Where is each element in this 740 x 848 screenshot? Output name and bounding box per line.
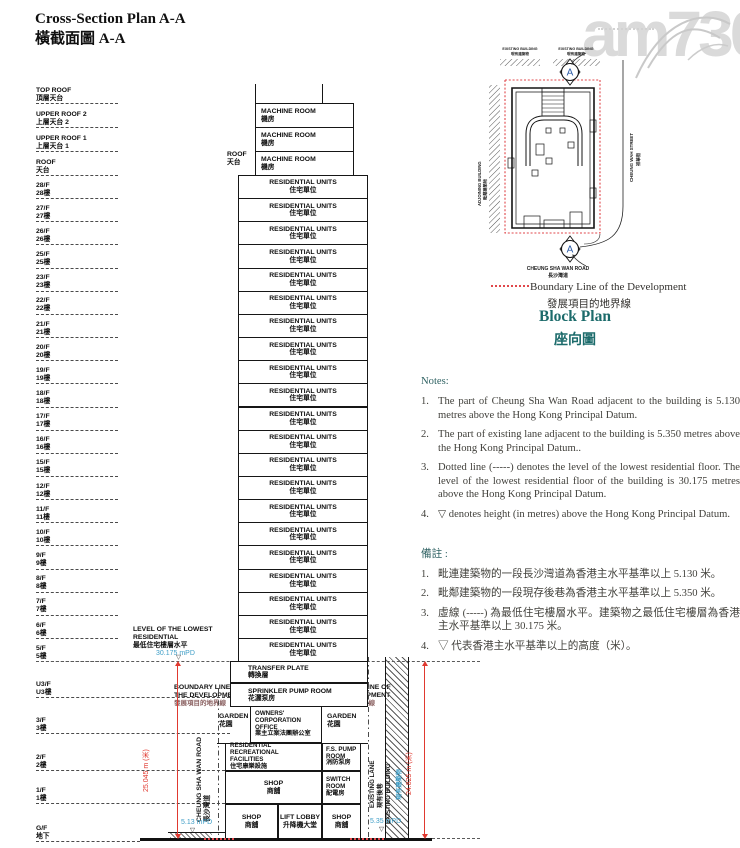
floor-label-toproof: TOP ROOF頂層天台: [36, 87, 71, 103]
switch-room-box: SWITCHROOM配電房: [322, 771, 361, 804]
floor-label-10f: 10/F10樓: [36, 529, 50, 545]
floor-level-dash: [36, 383, 118, 384]
garden-label-left: GARDEN花園: [219, 713, 248, 729]
floor-label-18f: 18/F18樓: [36, 390, 50, 406]
dimension-arrow: [175, 661, 181, 666]
notes-heading-zh: 備註 :: [421, 548, 740, 562]
floor-label-8f: 8/F8樓: [36, 575, 47, 591]
cheung-wah-street-label-en: CHEUNG WAH STREET: [629, 133, 634, 182]
dimension-arrow: [175, 834, 181, 839]
residential-units-box: RESIDENTIAL UNITS住宅單位: [238, 268, 368, 292]
floor-label-16f: 16/F16樓: [36, 436, 50, 452]
ground-dashed-right: [432, 838, 480, 839]
residential-units-box: RESIDENTIAL UNITS住宅單位: [238, 522, 368, 546]
notes-section: Notes: 1.The part of Cheung Sha Wan Road…: [421, 375, 740, 659]
adjoining-building-label-zh: 毗鄰建築物: [482, 178, 489, 200]
sprinkler-pump-room-box: SPRINKLER PUMP ROOM花灑泵房: [230, 683, 368, 707]
floor-level-dash: [36, 407, 118, 408]
boundary-line-rect: [505, 80, 600, 233]
machine-room-box: MACHINE ROOM機房: [255, 151, 354, 176]
floor-level-dash: [36, 291, 118, 292]
floor-level-dash: [36, 221, 118, 222]
floor-level-dash: [36, 592, 118, 593]
floor-level-dash: [36, 841, 140, 842]
floor-label-23f: 23/F23樓: [36, 274, 50, 290]
floor-level-dash: [36, 638, 118, 639]
floor-level-dash: [36, 453, 118, 454]
owners-corporation-office-box: OWNERS'CORPORATIONOFFICE業主立案法團辦公室: [250, 706, 322, 743]
boundary-legend-line: [491, 285, 529, 287]
floor-label-upperroof1: UPPER ROOF 1上層天台 1: [36, 135, 87, 151]
level-marker-535: ▽: [379, 827, 384, 834]
floor-label-20f: 20/F20樓: [36, 344, 50, 360]
parapet-line: [322, 84, 323, 103]
floor-level-dash: [36, 337, 118, 338]
road-curve-outer: [580, 206, 623, 247]
boundary-legend-text-en: Boundary Line of the Development: [530, 281, 686, 293]
floor-level-dash: [36, 175, 118, 176]
block-plan-title-en: Block Plan: [500, 308, 650, 326]
garden-label-right: GARDEN花園: [327, 713, 356, 729]
floor-label-1f: 1/F1樓: [36, 787, 47, 803]
residential-units-box: RESIDENTIAL UNITS住宅單位: [238, 314, 368, 338]
shop-box-1f: SHOP商舖: [225, 771, 322, 804]
residential-units-box: RESIDENTIAL UNITS住宅單位: [238, 569, 368, 593]
svg-text:A: A: [567, 68, 574, 79]
block-plan-title-zh: 座向圖: [500, 329, 650, 349]
floor-label-15f: 15/F15樓: [36, 459, 50, 475]
residential-units-box: RESIDENTIAL UNITS住宅單位: [238, 430, 368, 454]
floor-level-dash: [36, 103, 118, 104]
floor-label-gf: G/F地下: [36, 825, 50, 841]
note-item: 4.▽ 代表香港主水平基準以上的高度（米）。: [421, 640, 740, 654]
existing-building-top-right-label-en: EXISTING BUILDING: [558, 47, 593, 51]
residential-units-box: RESIDENTIAL UNITS住宅單位: [238, 383, 368, 407]
residential-units-box: RESIDENTIAL UNITS住宅單位: [238, 337, 368, 361]
notes-list-en: 1.The part of Cheung Sha Wan Road adjace…: [421, 395, 740, 522]
existing-building-label-en: EXISTING BUILDING: [385, 763, 393, 824]
residential-units-box: RESIDENTIAL UNITS住宅單位: [238, 592, 368, 616]
note-item: 3.Dotted line (-----) denotes the level …: [421, 461, 740, 502]
note-item: 4.▽ denotes height (in metres) above the…: [421, 508, 740, 522]
floor-label-upperroof2: UPPER ROOF 2上層天台 2: [36, 111, 87, 127]
residential-units-box: RESIDENTIAL UNITS住宅單位: [238, 221, 368, 245]
floor-level-dash: [36, 360, 118, 361]
machine-room-box: MACHINE ROOM機房: [255, 103, 354, 128]
floor-level-dash: [36, 244, 118, 245]
note-item: 1.The part of Cheung Sha Wan Road adjace…: [421, 395, 740, 423]
residential-units-box: RESIDENTIAL UNITS住宅單位: [238, 476, 368, 500]
floor-level-dash: [36, 198, 118, 199]
residential-units-box: RESIDENTIAL UNITS住宅單位: [238, 360, 368, 384]
note-item: 2.毗鄰建築物的一段現存後巷為香港主水平基準以上 5.350 米。: [421, 587, 740, 601]
shop-box-gf-left: SHOP商舖: [225, 804, 278, 839]
existing-building-top-left-label-en: EXISTING BUILDING: [502, 47, 537, 51]
floor-label-9f: 9/F9樓: [36, 552, 47, 568]
floor-label-6f: 6/F6樓: [36, 622, 47, 638]
floor-level-dash: [36, 569, 118, 570]
floor-label-u3f: U3/FU3樓: [36, 681, 52, 697]
existing-lane-label: EXISTING LANE現有後巷: [369, 761, 385, 808]
residential-units-box: RESIDENTIAL UNITS住宅單位: [238, 244, 368, 268]
dimension-line-right: [424, 663, 425, 837]
floor-level-dash: [36, 476, 118, 477]
residential-units-box: RESIDENTIAL UNITS住宅單位: [238, 545, 368, 569]
cheung-sha-wan-road-label-zh: 長沙灣道: [548, 272, 568, 279]
transfer-plate-box: TRANSFER PLATE轉換層: [230, 661, 368, 683]
floor-label-26f: 26/F26樓: [36, 228, 50, 244]
existing-building-top-left-label-zh: 現有建築物: [511, 51, 529, 56]
residential-units-box: RESIDENTIAL UNITS住宅單位: [238, 291, 368, 315]
note-item: 2.The part of existing lane adjacent to …: [421, 428, 740, 456]
floor-level-dash: [36, 151, 118, 152]
dimension-arrow: [422, 661, 428, 666]
lift-lobby-box: LIFT LOBBY升降機大堂: [278, 804, 322, 839]
floor-level-dash: [36, 127, 118, 128]
page-title-zh: 橫截面圖 A-A: [35, 30, 186, 50]
boundary-line-left: [218, 688, 219, 841]
residential-units-box: RESIDENTIAL UNITS住宅單位: [238, 175, 368, 199]
ground-line: [140, 838, 432, 841]
floor-label-17f: 17/F17樓: [36, 413, 50, 429]
floor-label-28f: 28/F28樓: [36, 182, 50, 198]
residential-units-box: RESIDENTIAL UNITS住宅單位: [238, 407, 368, 431]
page-title-en: Cross-Section Plan A-A: [35, 10, 186, 30]
floor-label-19f: 19/F19樓: [36, 367, 50, 383]
floor-level-dash: [36, 733, 230, 734]
floor-label-7f: 7/F7樓: [36, 598, 47, 614]
notes-heading-en: Notes:: [421, 375, 740, 389]
dimension-left-value: 25.045 m (米): [143, 749, 152, 792]
notes-list-zh: 1.毗連建築物的一段長沙灣道為香港主水平基準以上 5.130 米。2.毗鄰建築物…: [421, 568, 740, 653]
note-item: 1.毗連建築物的一段長沙灣道為香港主水平基準以上 5.130 米。: [421, 568, 740, 582]
residential-recreational-facilities-box: RESIDENTIAL RECREATIONALFACILITIES住宅康樂設施: [225, 743, 322, 771]
adjoining-building-hatch: [489, 85, 500, 233]
fs-pump-room-box: F.S. PUMPROOM消防泵房: [322, 743, 361, 771]
road-curve-inner: [584, 234, 600, 244]
floor-label-2f: 2/F2樓: [36, 754, 47, 770]
building-footprint: [508, 88, 596, 228]
existing-building-top-right-hatch: [553, 59, 600, 66]
page-title: Cross-Section Plan A-A 橫截面圖 A-A: [35, 10, 186, 49]
floor-level-dash: [36, 314, 118, 315]
cross-section-page: Cross-Section Plan A-A 橫截面圖 A-A am730 AD…: [0, 0, 740, 848]
floor-label-11f: 11/F11樓: [36, 506, 50, 522]
residential-units-box: RESIDENTIAL UNITS住宅單位: [238, 198, 368, 222]
floor-level-dash: [36, 268, 118, 269]
cheung-wah-street-label-zh: 祥華街: [635, 152, 642, 166]
svg-text:A: A: [567, 245, 574, 256]
lane-level-value: 5.35 mPD: [370, 818, 401, 825]
level-marker-513: ▽: [190, 828, 195, 835]
floor-label-22f: 22/F22樓: [36, 297, 50, 313]
residential-units-box: RESIDENTIAL UNITS住宅單位: [238, 615, 368, 639]
floor-label-3f: 3/F3樓: [36, 717, 47, 733]
floor-level-dash: [36, 499, 118, 500]
floor-level-dash: [36, 430, 118, 431]
block-plan-drawing: ADJOINING BUILDING 毗鄰建築物 EXISTING BUILDI…: [476, 38, 668, 290]
parapet-line: [255, 84, 256, 103]
floor-level-dash: [36, 545, 118, 546]
cheung-sha-wan-road-label: CHEUNG SHA WAN ROAD長沙灣道: [196, 737, 213, 822]
existing-building-top-left-hatch: [500, 59, 540, 66]
floor-level-dash: [36, 615, 118, 616]
residential-units-box: RESIDENTIAL UNITS住宅單位: [238, 638, 368, 662]
adjoining-building-label-en: ADJOINING BUILDING: [477, 161, 482, 206]
note-item: 3.虛線 (-----) 為最低住宅樓層水平。建築物之最低住宅樓層為香港主水平基…: [421, 607, 740, 635]
cheung-sha-wan-road-label-en: CHEUNG SHA WAN ROAD: [527, 266, 590, 272]
existing-building-label-zh: 現有建築物: [396, 769, 404, 800]
boundary-ground-dot-left: [204, 838, 234, 840]
roof-side-label: ROOF天台: [227, 151, 247, 167]
floor-label-12f: 12/F12樓: [36, 483, 50, 499]
shop-box-gf-right: SHOP商舖: [322, 804, 361, 839]
floor-label-roof: ROOF天台: [36, 159, 56, 175]
dimension-right-value: 24.825 m (米): [406, 752, 415, 795]
residential-units-box: RESIDENTIAL UNITS住宅單位: [238, 499, 368, 523]
boundary-line-right: [368, 657, 369, 841]
machine-room-box: MACHINE ROOM機房: [255, 127, 354, 152]
floor-label-27f: 27/F27樓: [36, 205, 50, 221]
block-plan-title: Block Plan 座向圖: [500, 308, 650, 349]
residential-units-box: RESIDENTIAL UNITS住宅單位: [238, 453, 368, 477]
floor-level-dash: [36, 522, 118, 523]
dimension-arrow: [422, 834, 428, 839]
existing-building-top-right-label-zh: 現有建築物: [567, 51, 585, 56]
floor-label-21f: 21/F21樓: [36, 321, 50, 337]
floor-label-5f: 5/F5樓: [36, 645, 47, 661]
floor-label-25f: 25/F25樓: [36, 251, 50, 267]
dimension-line-left: [177, 663, 178, 837]
boundary-legend: Boundary Line of the Development 發展項目的地界…: [491, 281, 686, 311]
lowest-residential-label: LEVEL OF THE LOWESTRESIDENTIAL最低住宅樓層水平: [133, 626, 221, 650]
boundary-ground-dot-right: [350, 838, 384, 840]
section-marker-a-bottom: A: [560, 236, 586, 266]
road-level-value: 5.13 mPD: [181, 819, 212, 826]
